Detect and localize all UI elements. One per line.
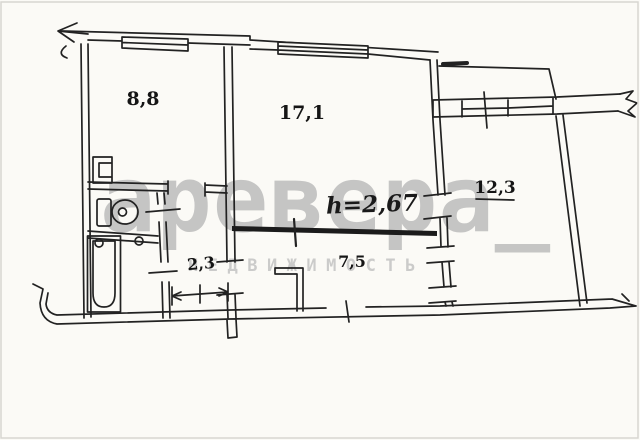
window-room-1 bbox=[122, 37, 188, 51]
room-label-12-3: 12,3 bbox=[474, 178, 515, 198]
room-3-label-underline bbox=[476, 199, 514, 200]
room-label-7-5: 7,5 bbox=[338, 252, 366, 271]
watermark-realty-text: НЕДВИЖИМОСТЬ bbox=[188, 256, 425, 276]
room-label-8-8: 8,8 bbox=[126, 88, 159, 110]
floor-plan-svg: аревера_ НЕДВИЖИМОСТЬ bbox=[0, 0, 640, 440]
ceiling-height-label: h=2,67 bbox=[326, 189, 419, 219]
floor-plan-scan: аревера_ НЕДВИЖИМОСТЬ bbox=[0, 0, 640, 440]
balcony-wall-dash bbox=[443, 63, 467, 64]
room-label-2-3: 2,3 bbox=[186, 253, 215, 274]
room-label-17-1: 17,1 bbox=[279, 102, 325, 124]
